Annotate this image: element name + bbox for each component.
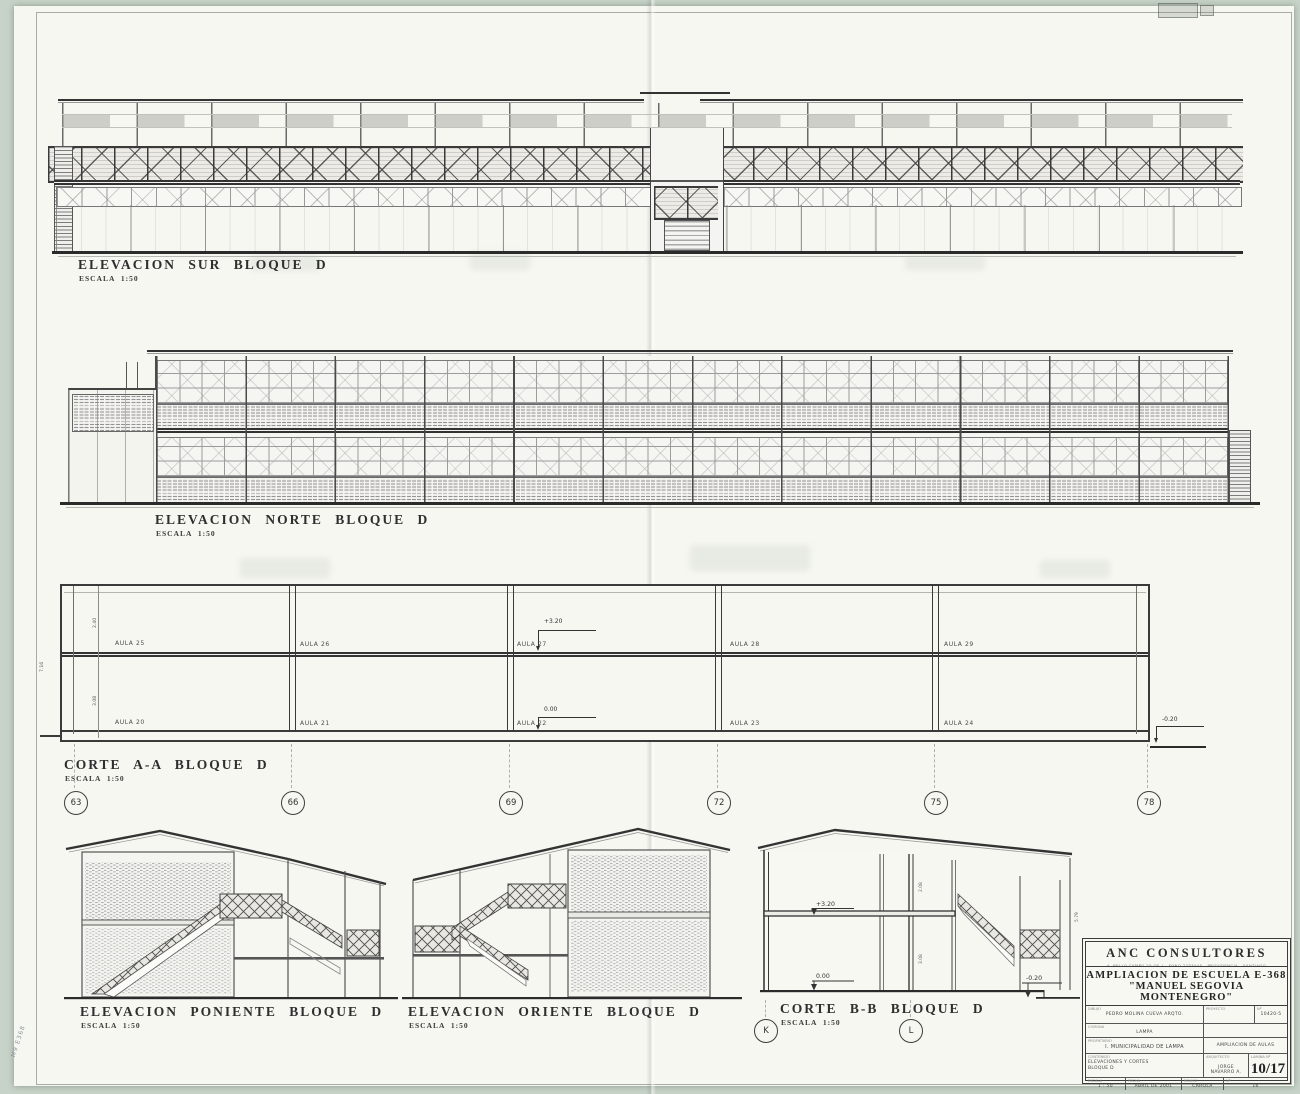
level-arrow — [1154, 738, 1158, 743]
field-value: ABRIL DE 2001 — [1128, 1084, 1179, 1089]
room-label: AULA 21 — [300, 720, 330, 727]
stair-tower-x-panel — [654, 186, 718, 220]
elevation-south-drawing — [48, 90, 1243, 260]
grid-bubble-66: 66 — [281, 791, 305, 815]
stair-stringer — [958, 906, 1014, 966]
level-arrow — [536, 725, 540, 730]
scale-elevation-south: ESCALA 1:50 — [79, 274, 139, 283]
field-label: ESCALA — [1088, 1079, 1123, 1083]
scan-smudge — [1040, 560, 1110, 578]
field-value: 1 : 50 — [1088, 1084, 1123, 1089]
level-arrow — [1025, 991, 1031, 998]
scale-section-b: ESCALA 1:50 — [781, 1018, 841, 1027]
grid-leader — [509, 744, 510, 788]
grid-leader — [934, 744, 935, 788]
level-line — [1156, 726, 1204, 727]
level-arrow — [536, 646, 540, 651]
grid-bubble-78: 78 — [1137, 791, 1161, 815]
dim-total: 7.16 — [40, 662, 45, 672]
room-label: AULA 26 — [300, 641, 330, 648]
ground-echo — [66, 507, 1254, 508]
label-elevation-east: ELEVACION ORIENTE BLOQUE D — [408, 1004, 701, 1020]
railing-x-panels-right — [720, 146, 1243, 183]
section-interior — [764, 850, 913, 990]
level-exterior: -0.20 — [1162, 716, 1178, 723]
field-fecha: FECHA ABRIL DE 2001 — [1126, 1078, 1182, 1090]
room-label: AULA 22 — [517, 720, 547, 727]
dim-lower: 3.08 — [93, 696, 98, 706]
field-lamina: LAMINA Nº 10/17 — [1249, 1054, 1287, 1077]
scale-elevation-east: ESCALA 1:50 — [409, 1021, 469, 1030]
field-arquitecto: ARQUITECTO JORGE NAVARRO A. — [1204, 1054, 1249, 1077]
transom-windows — [56, 187, 1242, 207]
grid-leader — [765, 1000, 766, 1017]
annex-mullions — [69, 390, 156, 504]
exterior-grade — [1036, 997, 1080, 999]
gallery-x-panel — [1020, 930, 1060, 958]
facade-columns — [156, 356, 1228, 502]
scanned-drawing-sheet: ELEVACION SUR BLOQUE D ESCALA 1:50 ELEVA… — [0, 0, 1300, 1094]
project-line1: AMPLIACION DE ESCUELA E-368 — [1086, 970, 1287, 981]
gallery-x-panel — [347, 930, 379, 956]
stair-stringer — [466, 938, 526, 986]
elevation-east-drawing — [400, 818, 745, 1008]
stair-railing-flight2 — [282, 900, 342, 948]
room-label: AULA 25 — [115, 640, 145, 647]
annex-stack — [126, 362, 138, 388]
dim-upper: 2.08 — [918, 882, 924, 892]
field-value: 10420-5 — [1257, 1012, 1285, 1017]
scale-elevation-west: ESCALA 1:50 — [81, 1021, 141, 1030]
sheet-number: 10/17 — [1251, 1059, 1285, 1080]
label-elevation-north: ELEVACION NORTE BLOQUE D — [155, 512, 429, 528]
grid-leader — [910, 1000, 911, 1017]
landing-x-panels — [508, 884, 566, 908]
scan-smudge — [240, 558, 330, 578]
elevation-west-drawing — [62, 818, 402, 1008]
label-elevation-south: ELEVACION SUR BLOQUE D — [78, 257, 328, 273]
grid-bubble-69: 69 — [499, 791, 523, 815]
field-contenido: CONTENIDO ELEVACIONES Y CORTES BLOQUE D — [1086, 1054, 1204, 1077]
mid-floor-slab — [62, 652, 1148, 657]
field-comuna: COMUNA LAMPA — [1086, 1024, 1204, 1037]
stair-railing-flight2 — [460, 926, 528, 980]
grid-leader — [74, 744, 75, 788]
field-value: ELEVACIONES Y CORTES — [1088, 1060, 1201, 1065]
project-title: AMPLIACION DE ESCUELA E-368 "MANUEL SEGO… — [1086, 966, 1287, 1005]
field-proyecto: PROYECTO — [1204, 1006, 1255, 1023]
field-label: DIBUJO — [1088, 1007, 1201, 1011]
left-annex — [68, 388, 156, 504]
right-wall-inner — [1136, 586, 1137, 734]
section-outline — [60, 584, 1150, 742]
ground-line — [52, 251, 1243, 254]
level-line — [538, 630, 596, 631]
field-value: LAMPA — [1088, 1030, 1201, 1035]
grid-leader — [717, 744, 718, 788]
level-arrow-stem — [538, 630, 539, 647]
scale-elevation-north: ESCALA 1:50 — [156, 529, 216, 538]
section-a-a-drawing: AULA 25 AULA 26 AULA 27 AULA 28 AULA 29 … — [60, 580, 1220, 752]
field-value: I. MUNICIPALIDAD DE LAMPA — [1088, 1044, 1201, 1050]
level-line — [538, 717, 596, 718]
field-label: Nº — [1226, 1079, 1285, 1083]
clerestory-band — [62, 114, 1232, 128]
label-section-b: CORTE B-B BLOQUE D — [780, 1001, 985, 1017]
mid-slab — [568, 912, 710, 918]
field-label: PROYECTO — [1206, 1007, 1252, 1011]
north-facade — [155, 356, 1229, 502]
level-upper: +3.20 — [544, 618, 562, 625]
floor-slab — [54, 180, 1240, 185]
level-ground: 0.00 — [816, 973, 830, 980]
level-exterior: -0.20 — [1026, 975, 1042, 982]
stair-railing — [958, 894, 1014, 958]
dim-line — [98, 586, 99, 738]
grid-bubble-75: 75 — [924, 791, 948, 815]
room-label: AULA 29 — [944, 641, 974, 648]
level-ground: 0.00 — [544, 706, 557, 713]
grid-bubble-63: 63 — [64, 791, 88, 815]
tower-slab — [651, 180, 723, 182]
stair-truss — [290, 938, 340, 974]
corner-stamp — [1158, 3, 1198, 18]
title-block-fields: DIBUJO PEDRO MOLINA CUEVA ARQTO. PROYECT… — [1086, 1005, 1287, 1090]
end-ladder — [1229, 430, 1251, 504]
room-label: AULA 23 — [730, 720, 760, 727]
field-numero: Nº 10420-5 — [1255, 1006, 1287, 1023]
grid-bubble-72: 72 — [707, 791, 731, 815]
title-block-inner: ANC CONSULTORES A. BELLO CAMPO 25 OF. J … — [1085, 941, 1288, 1081]
grid-leader — [1147, 744, 1148, 788]
bottom-floor-line — [62, 730, 1148, 732]
landing-x-panels — [220, 894, 282, 918]
section-b-b-drawing: +3.20 0.00 -0.20 2.08 3.08 5.79 — [752, 818, 1082, 1013]
room-label: AULA 27 — [517, 641, 547, 648]
roof-slab — [147, 350, 1233, 354]
field-label: COMUNA — [1088, 1025, 1201, 1029]
title-block: ANC CONSULTORES A. BELLO CAMPO 25 OF. J … — [1082, 938, 1291, 1084]
cut-column — [507, 586, 514, 732]
level-upper: +3.20 — [816, 901, 835, 908]
field-value: 16 — [1226, 1084, 1285, 1089]
field-label: REVISO — [1184, 1079, 1221, 1083]
scan-smudge — [690, 545, 810, 571]
dim-lower: 3.08 — [918, 954, 924, 964]
field-label: Nº — [1257, 1007, 1285, 1011]
field-value: AMPLIACION DE AULAS — [1206, 1043, 1285, 1048]
company-name: ANC CONSULTORES — [1086, 942, 1287, 961]
ground-line — [64, 997, 398, 999]
field-label: FECHA — [1128, 1079, 1179, 1083]
dim-upper: 2.40 — [93, 618, 98, 628]
tower-door — [664, 220, 710, 251]
dim-right: 5.79 — [1074, 912, 1080, 922]
ground-floor-wall — [56, 205, 1240, 251]
ground-line — [402, 997, 742, 999]
grid-leader — [291, 744, 292, 788]
field-hoja: Nº 16 — [1224, 1078, 1287, 1090]
elevation-north-drawing — [60, 344, 1260, 514]
grid-bubble-l: L — [899, 1019, 923, 1043]
left-wall-inner — [73, 586, 74, 734]
field-escala: ESCALA 1 : 50 — [1086, 1078, 1126, 1090]
ceiling-line — [64, 592, 1146, 593]
room-label: AULA 28 — [730, 641, 760, 648]
room-label: AULA 24 — [944, 720, 974, 727]
label-elevation-west: ELEVACION PONIENTE BLOQUE D — [80, 1004, 383, 1020]
mid-floor-slab — [764, 911, 955, 916]
brick-hatch-upper — [85, 862, 231, 920]
ground-line — [60, 502, 1260, 505]
roof-slab-center — [640, 92, 730, 96]
field-label: PROPIETARIO — [1088, 1039, 1201, 1043]
field-reviso: REVISO CAROLA — [1182, 1078, 1224, 1090]
field-propietario: PROPIETARIO I. MUNICIPALIDAD DE LAMPA — [1086, 1038, 1204, 1053]
project-line2: "MANUEL SEGOVIA MONTENEGRO" — [1086, 981, 1287, 1003]
brick-hatch-lower — [571, 920, 707, 992]
grid-bubble-k: K — [754, 1019, 778, 1043]
left-step — [40, 735, 60, 737]
field-proyecto-note: AMPLIACION DE AULAS — [1204, 1038, 1287, 1053]
cut-column — [289, 586, 296, 732]
field-label: CONTENIDO — [1088, 1055, 1201, 1059]
field-label: ARQUITECTO — [1206, 1055, 1246, 1059]
field-value: JORGE NAVARRO A. — [1206, 1065, 1246, 1075]
field-value: PEDRO MOLINA CUEVA ARQTO. — [1088, 1012, 1201, 1017]
corner-stamp — [1200, 5, 1214, 16]
gallery-slab — [234, 957, 384, 960]
stair-tower — [650, 128, 724, 251]
ground-line — [760, 990, 1044, 992]
field-value: CAROLA — [1184, 1084, 1221, 1089]
label-section-a: CORTE A-A BLOQUE D — [64, 757, 269, 773]
field-proyecto-cont — [1204, 1024, 1287, 1037]
brick-hatch-upper — [571, 855, 707, 912]
field-value: BLOQUE D — [1088, 1066, 1201, 1071]
cut-column — [932, 586, 939, 732]
exterior-grade — [1150, 746, 1206, 748]
railing-x-panels-left — [48, 146, 650, 183]
field-dibujo: DIBUJO PEDRO MOLINA CUEVA ARQTO. — [1086, 1006, 1204, 1023]
cut-column — [715, 586, 722, 732]
room-label: AULA 20 — [115, 719, 145, 726]
